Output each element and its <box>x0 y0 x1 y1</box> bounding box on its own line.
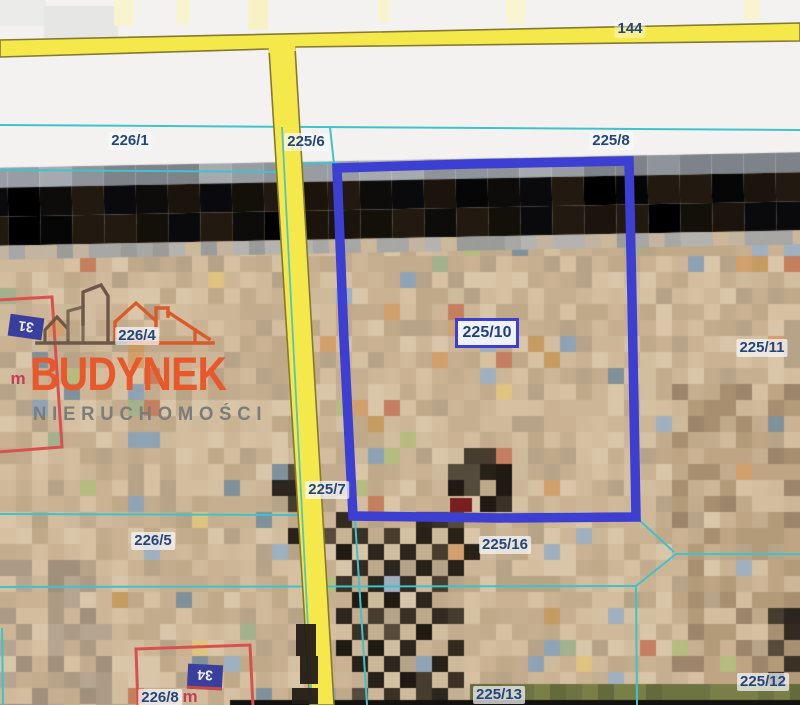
tree-shadow-block <box>292 688 318 704</box>
parcel-boundary-line <box>355 519 367 705</box>
parcel-boundary-line <box>298 163 338 164</box>
parcel-boundary-line <box>636 586 637 705</box>
parcel-boundary-line <box>638 519 674 552</box>
parcel-boundary-line <box>2 628 3 705</box>
skyline-icon <box>35 280 217 350</box>
road-horizontal <box>0 23 800 57</box>
cadastral-map: 225/10 144226/1225/6225/8226/4225/11225/… <box>0 0 800 705</box>
selected-parcel-outline <box>337 161 636 518</box>
budynek-logo-icon <box>35 280 217 355</box>
building-outline <box>136 645 253 705</box>
road-vertical <box>269 47 334 705</box>
parcel-boundary-line <box>0 170 284 172</box>
parcel-boundary-line <box>0 514 306 515</box>
parcel-boundary-line <box>636 554 676 586</box>
tree-shadow-block <box>296 624 316 656</box>
parcel-boundary-line <box>330 127 334 164</box>
parcel-boundary-line <box>0 125 800 130</box>
tree-shadow-block <box>300 656 318 684</box>
road-junction-patch <box>268 39 296 53</box>
